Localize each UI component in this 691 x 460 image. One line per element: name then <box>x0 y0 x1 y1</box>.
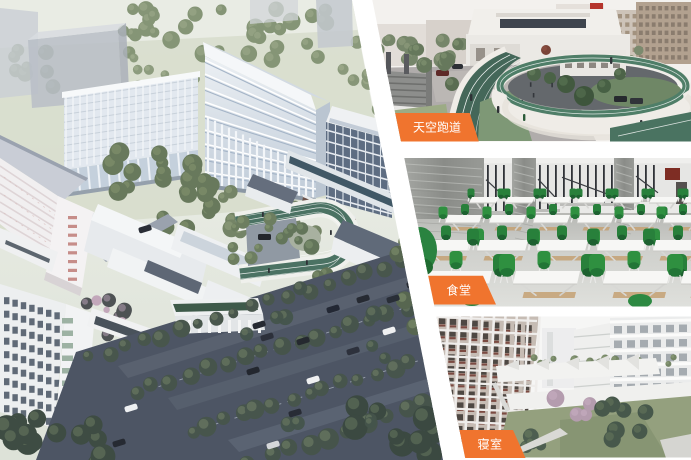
svg-text:寝室: 寝室 <box>477 437 502 452</box>
svg-text:食堂: 食堂 <box>446 283 471 298</box>
svg-text:天空跑道: 天空跑道 <box>413 121 461 135</box>
